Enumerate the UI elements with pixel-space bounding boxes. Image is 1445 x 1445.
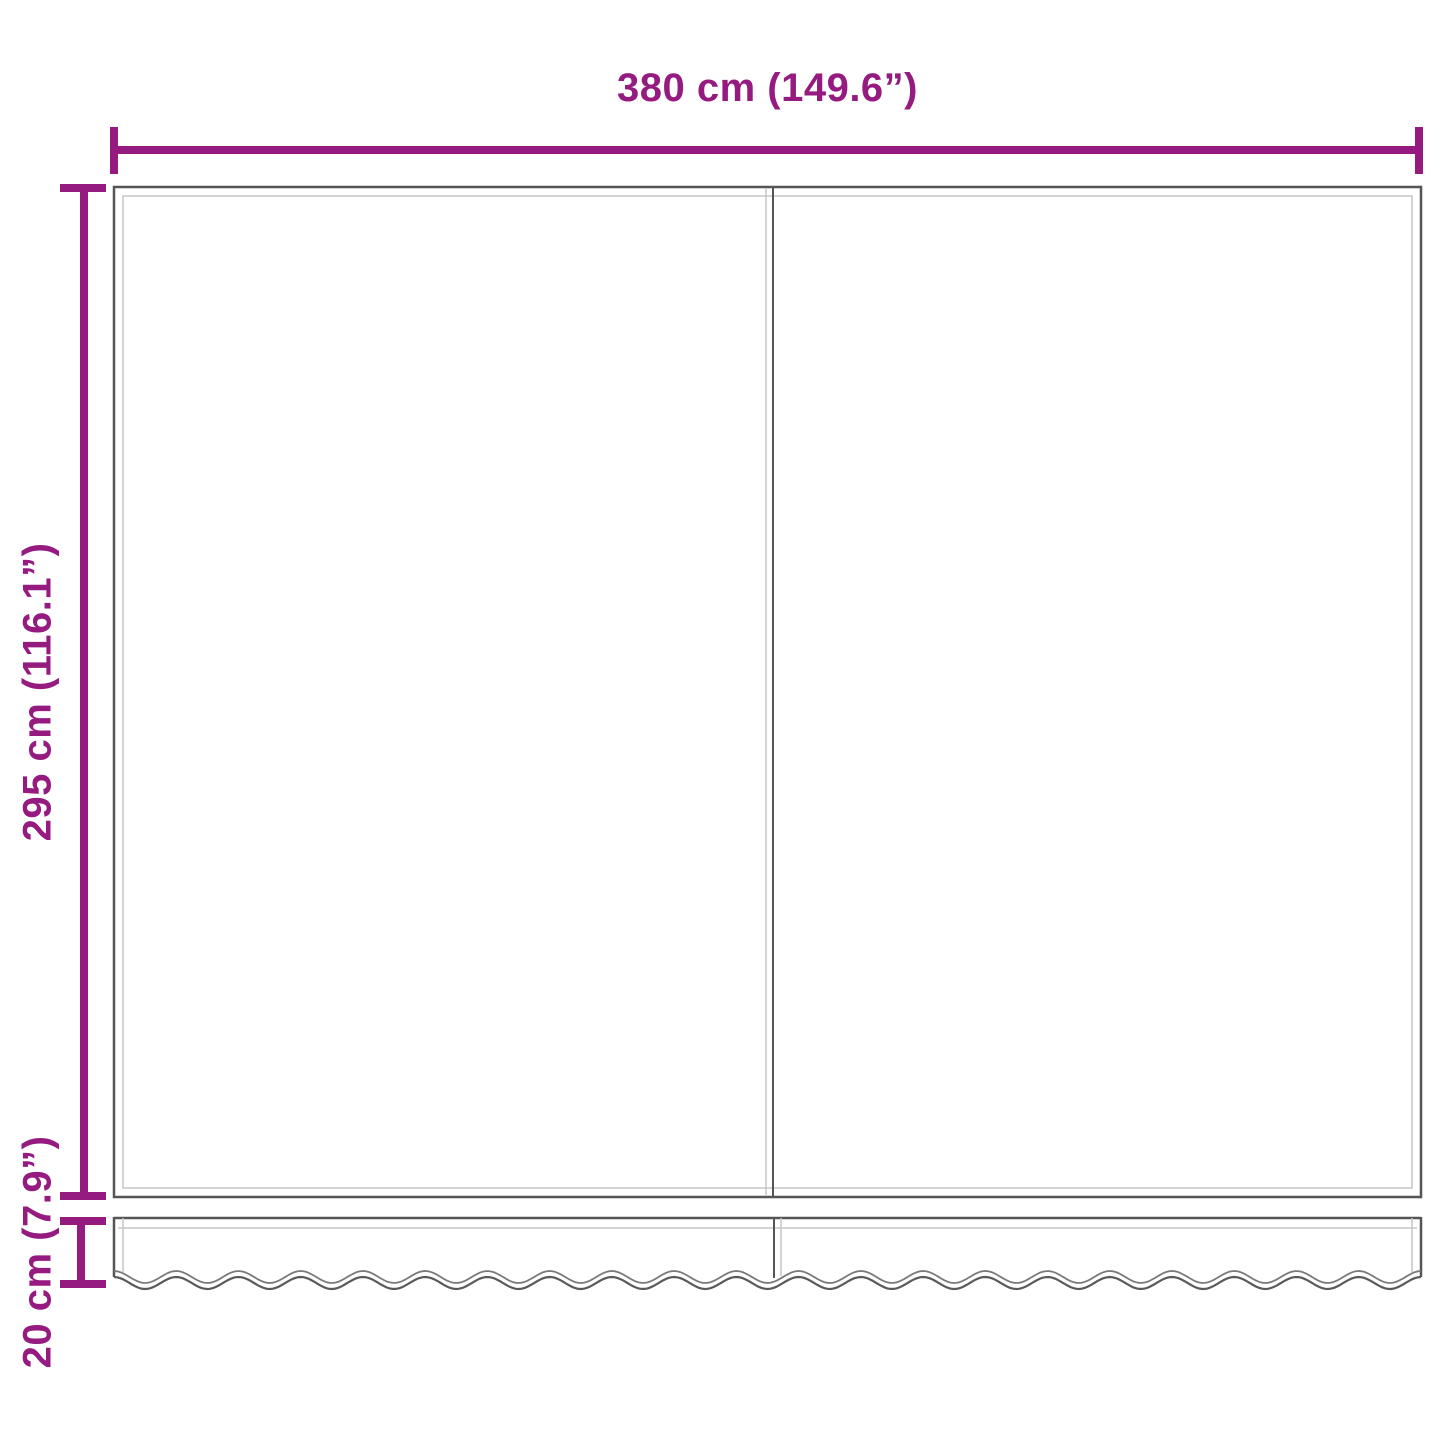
dimension-valance-tick-bottom — [60, 1280, 106, 1288]
main-fabric-outline — [114, 187, 1421, 1197]
dimension-width-tick-left — [110, 127, 118, 174]
dimension-valance-line — [77, 1221, 85, 1284]
dimension-height-tick-bottom — [60, 1192, 106, 1200]
main-fabric-seam-line — [123, 196, 1412, 1188]
valance-scalloped-edge-inner — [114, 1271, 1421, 1283]
dimension-height-line — [80, 188, 88, 1197]
dimension-width-tick-right — [1415, 127, 1423, 174]
dimension-valance-label: 20 cm (7.9”) — [16, 1136, 61, 1369]
dimension-valance-tick-top — [60, 1217, 106, 1225]
dimension-diagram: 380 cm (149.6”) 295 cm (116.1”) 20 cm (7… — [0, 0, 1445, 1445]
dimension-height-tick-top — [60, 184, 106, 192]
dimension-height-label: 295 cm (116.1”) — [16, 543, 61, 842]
dimension-width-label: 380 cm (149.6”) — [114, 66, 1421, 111]
awning-fabric-drawing — [0, 0, 1445, 1445]
dimension-width-line — [110, 146, 1419, 154]
